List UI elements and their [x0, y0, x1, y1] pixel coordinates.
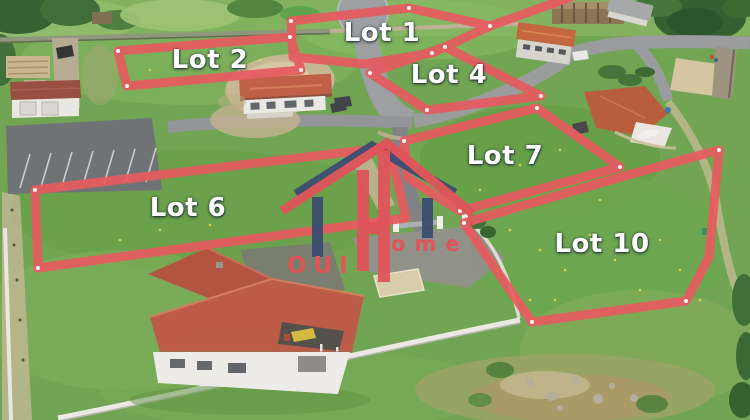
- logo-blue-bar-left: [312, 197, 323, 257]
- logo-h-crossbar: [357, 222, 390, 234]
- lot-1-label: Lot 1: [344, 18, 421, 48]
- lot-7-label: Lot 7: [467, 141, 544, 171]
- watermark-ome-text: ome: [391, 232, 469, 256]
- logo-h-left-leg: [357, 170, 369, 271]
- lot-4-label: Lot 4: [411, 60, 488, 90]
- watermark-oui-text: OUI: [287, 253, 355, 279]
- lot-10-label: Lot 10: [554, 229, 649, 259]
- logo-h-right-leg: [378, 150, 390, 282]
- aerial-photo: Lot 1 Lot 2 Lot 4 Lot 6 Lot 7 Lot 10 OUI…: [0, 0, 750, 420]
- lot-6-label: Lot 6: [150, 193, 227, 223]
- lot-2-label: Lot 2: [172, 45, 249, 75]
- scene: [0, 0, 750, 420]
